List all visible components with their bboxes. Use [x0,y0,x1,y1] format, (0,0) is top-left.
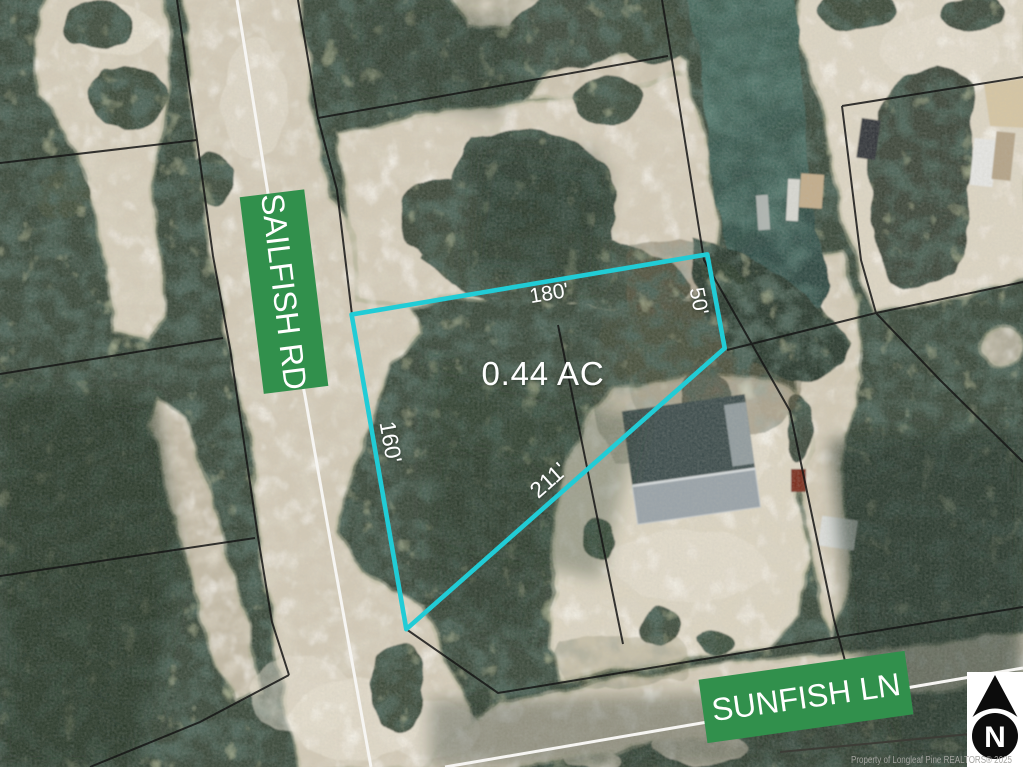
svg-text:Property of Longleaf Pine REAL: Property of Longleaf Pine REALTORS® 2025 [851,755,1012,766]
svg-text:0.44 AC: 0.44 AC [481,355,604,392]
svg-text:N: N [984,721,1006,754]
